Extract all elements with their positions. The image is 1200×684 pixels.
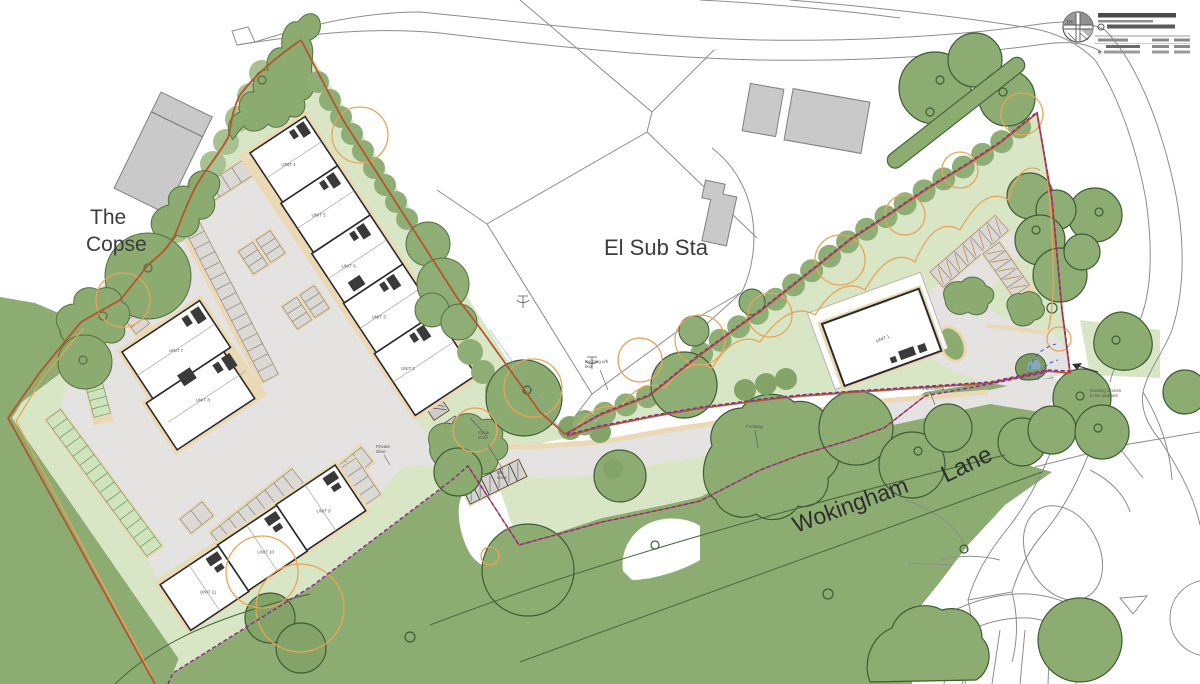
svg-text:to be retained: to be retained [1090, 393, 1118, 398]
svg-text:1.8m fence: 1.8m fence [922, 386, 945, 391]
svg-text:TH: TH [1066, 20, 1073, 26]
svg-text:Footway: Footway [746, 424, 764, 429]
svg-text:UNIT 11: UNIT 11 [200, 589, 217, 594]
svg-text:line: line [585, 364, 593, 369]
svg-text:UNIT 4: UNIT 4 [281, 162, 296, 167]
svg-text:UNIT 6: UNIT 6 [342, 264, 357, 269]
svg-text:Copse: Copse [86, 233, 147, 256]
svg-text:UNIT 9: UNIT 9 [317, 509, 332, 514]
svg-text:UNIT 2: UNIT 2 [401, 366, 416, 371]
svg-text:UNIT 3: UNIT 3 [372, 314, 387, 319]
svg-text:The: The [90, 206, 126, 229]
svg-text:El Sub Sta: El Sub Sta [604, 235, 709, 260]
svg-text:UNIT 5: UNIT 5 [311, 213, 326, 218]
svg-text:store: store [497, 475, 508, 480]
svg-text:drive: drive [376, 449, 386, 454]
svg-text:UNIT 7: UNIT 7 [169, 348, 184, 353]
svg-text:UNIT 8: UNIT 8 [196, 398, 211, 403]
svg-text:UNIT 10: UNIT 10 [257, 550, 274, 555]
